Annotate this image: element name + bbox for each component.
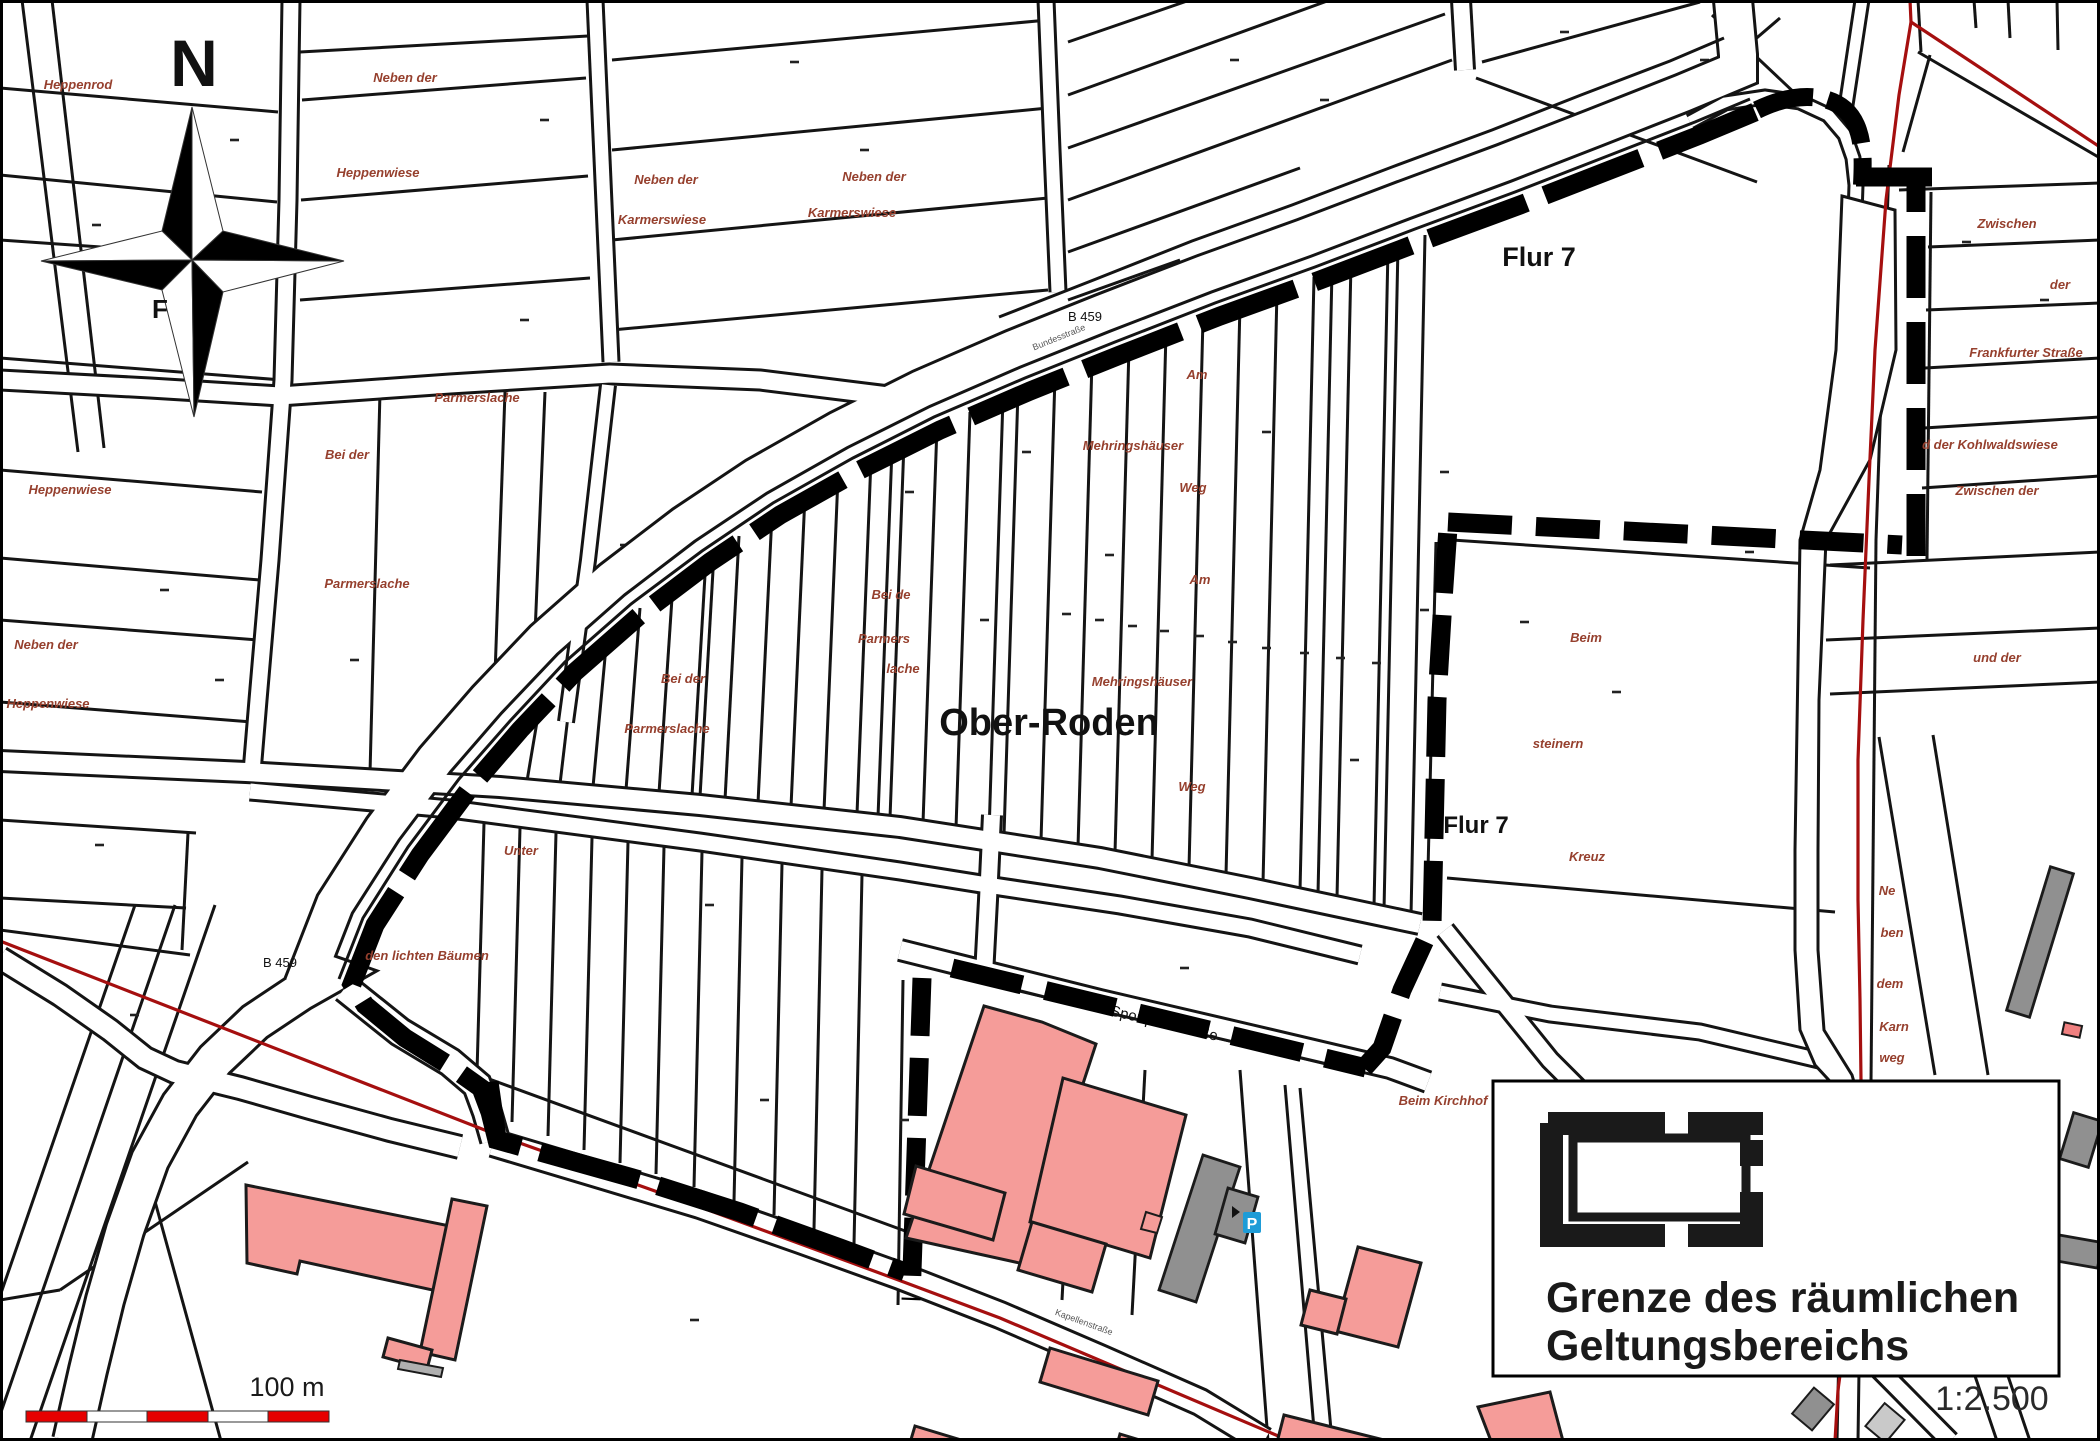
svg-text:lache: lache bbox=[886, 661, 919, 676]
svg-text:1:2.500: 1:2.500 bbox=[1935, 1380, 2048, 1418]
svg-text:Zwischen: Zwischen bbox=[1976, 216, 2036, 231]
svg-text:Neben der: Neben der bbox=[14, 637, 79, 652]
svg-text:Mehringshäuser: Mehringshäuser bbox=[1083, 438, 1184, 453]
svg-text:F: F bbox=[152, 294, 168, 324]
svg-text:100 m: 100 m bbox=[249, 1372, 324, 1402]
svg-text:Karmerswiese: Karmerswiese bbox=[808, 205, 896, 220]
svg-text:Parmerslache: Parmerslache bbox=[324, 576, 409, 591]
svg-text:Beim: Beim bbox=[1570, 630, 1602, 645]
svg-text:Mehringshäuser: Mehringshäuser bbox=[1092, 674, 1193, 689]
svg-text:B 459: B 459 bbox=[263, 955, 297, 970]
svg-text:steinern: steinern bbox=[1533, 736, 1584, 751]
svg-text:ben: ben bbox=[1880, 925, 1903, 940]
svg-text:d der Kohlwaldswiese: d der Kohlwaldswiese bbox=[1922, 437, 2058, 452]
svg-text:weg: weg bbox=[1879, 1050, 1904, 1065]
svg-text:Ober-Roden: Ober-Roden bbox=[939, 702, 1159, 744]
svg-text:Am: Am bbox=[1186, 367, 1208, 382]
svg-text:dem: dem bbox=[1877, 976, 1904, 991]
svg-text:Parmerslache: Parmerslache bbox=[434, 390, 519, 405]
svg-text:Zwischen der: Zwischen der bbox=[1954, 483, 2039, 498]
svg-text:Geltungsbereichs: Geltungsbereichs bbox=[1546, 1322, 1909, 1370]
svg-text:Weg: Weg bbox=[1179, 480, 1206, 495]
svg-text:Bei der: Bei der bbox=[325, 447, 370, 462]
svg-text:Flur 7: Flur 7 bbox=[1443, 812, 1508, 839]
svg-text:Weg: Weg bbox=[1178, 779, 1205, 794]
svg-text:Parmerslache: Parmerslache bbox=[624, 721, 709, 736]
svg-text:Unter: Unter bbox=[504, 843, 539, 858]
svg-text:Grenze des räumlichen: Grenze des räumlichen bbox=[1546, 1274, 2019, 1322]
svg-text:Parmers: Parmers bbox=[858, 631, 910, 646]
svg-text:Heppenwiese: Heppenwiese bbox=[336, 165, 419, 180]
svg-text:N: N bbox=[170, 26, 218, 100]
svg-text:Neben der: Neben der bbox=[842, 169, 907, 184]
svg-text:Heppenwiese: Heppenwiese bbox=[6, 696, 89, 711]
svg-text:Neben der: Neben der bbox=[373, 70, 438, 85]
svg-text:Karn: Karn bbox=[1879, 1019, 1909, 1034]
svg-text:und der: und der bbox=[1973, 650, 2022, 665]
svg-text:der: der bbox=[2050, 277, 2071, 292]
svg-text:Frankfurter Straße: Frankfurter Straße bbox=[1969, 345, 2082, 360]
svg-text:P: P bbox=[1247, 1216, 1258, 1233]
svg-text:Beim Kirchhof: Beim Kirchhof bbox=[1399, 1093, 1490, 1108]
svg-text:Am: Am bbox=[1189, 572, 1211, 587]
svg-text:Kreuz: Kreuz bbox=[1569, 849, 1606, 864]
svg-text:Neben der: Neben der bbox=[634, 172, 699, 187]
svg-text:den lichten Bäumen: den lichten Bäumen bbox=[365, 948, 489, 963]
svg-text:Karmerswiese: Karmerswiese bbox=[618, 212, 706, 227]
svg-text:Heppenrod: Heppenrod bbox=[44, 77, 114, 92]
svg-text:B 459: B 459 bbox=[1068, 309, 1102, 324]
svg-text:Bei de: Bei de bbox=[871, 587, 910, 602]
svg-text:Bei der: Bei der bbox=[661, 671, 706, 686]
svg-text:Ne: Ne bbox=[1879, 883, 1896, 898]
svg-text:Heppenwiese: Heppenwiese bbox=[28, 482, 111, 497]
svg-text:Flur 7: Flur 7 bbox=[1502, 242, 1576, 272]
